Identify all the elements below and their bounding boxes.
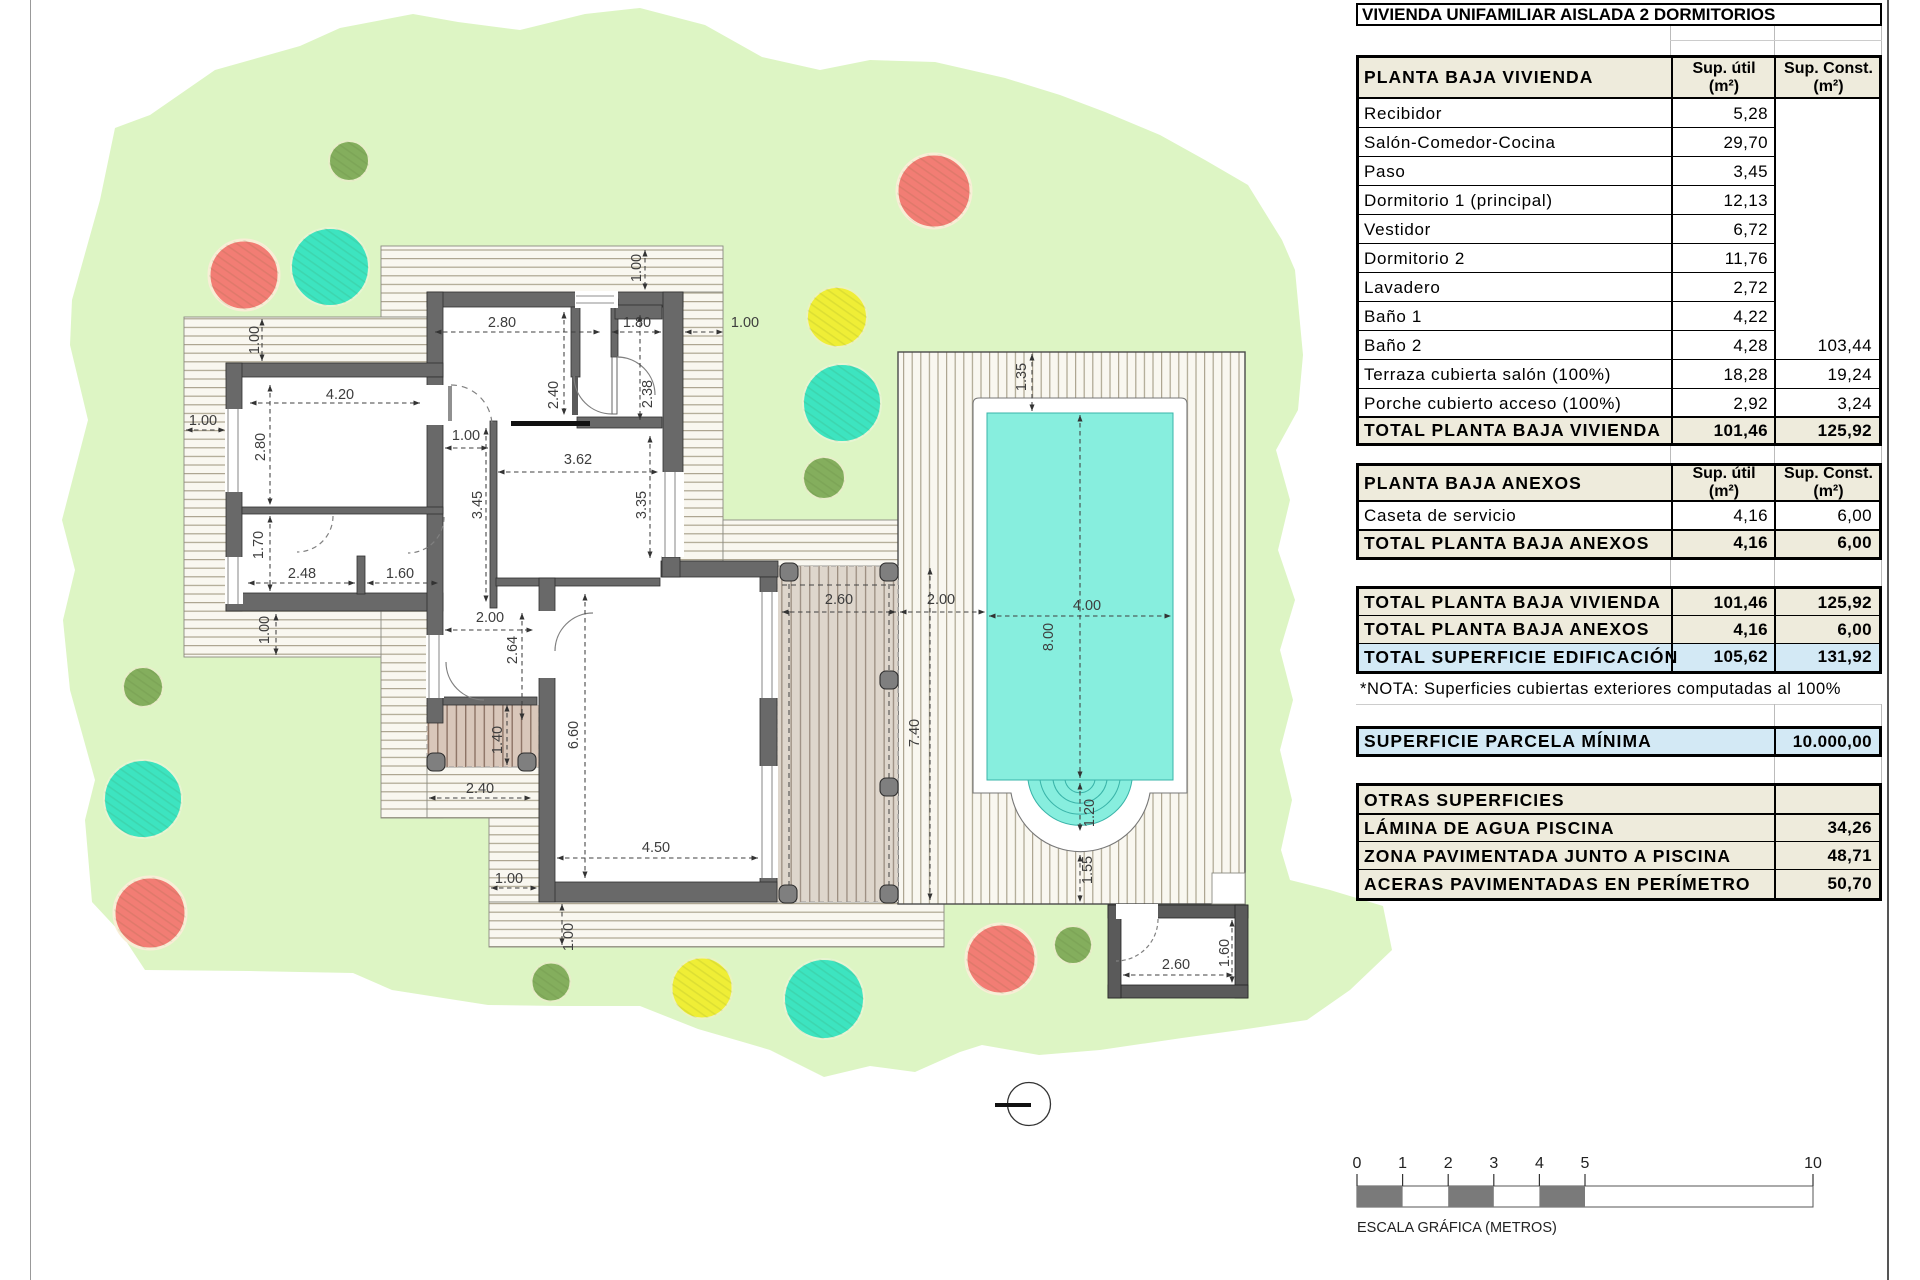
svg-text:8.00: 8.00 [1041, 623, 1057, 651]
svg-text:2.00: 2.00 [476, 610, 504, 626]
svg-text:1.00: 1.00 [247, 326, 263, 354]
svg-text:1.70: 1.70 [251, 531, 267, 559]
svg-text:7.40: 7.40 [907, 719, 923, 747]
svg-text:1.40: 1.40 [490, 726, 506, 754]
svg-text:1.00: 1.00 [452, 428, 480, 444]
svg-text:2: 2 [1444, 1155, 1453, 1172]
svg-text:1.20: 1.20 [1082, 799, 1098, 827]
svg-text:1.00: 1.00 [629, 254, 645, 282]
svg-text:1.55: 1.55 [1080, 856, 1096, 884]
svg-text:1.00: 1.00 [495, 871, 523, 887]
svg-text:4.20: 4.20 [326, 387, 354, 403]
svg-text:2.60: 2.60 [1162, 957, 1190, 973]
svg-text:1.60: 1.60 [386, 566, 414, 582]
svg-text:2.60: 2.60 [825, 592, 853, 608]
svg-text:4.00: 4.00 [1073, 598, 1101, 614]
svg-text:3.45: 3.45 [470, 491, 486, 519]
svg-text:3.62: 3.62 [564, 452, 592, 468]
svg-text:2.00: 2.00 [927, 592, 955, 608]
svg-text:6.60: 6.60 [566, 721, 582, 749]
svg-text:4.50: 4.50 [642, 840, 670, 856]
svg-text:1.00: 1.00 [731, 315, 759, 331]
svg-text:1.00: 1.00 [257, 616, 273, 644]
svg-text:0: 0 [1353, 1155, 1362, 1172]
svg-text:1.00: 1.00 [561, 923, 577, 951]
svg-text:2.80: 2.80 [253, 433, 269, 461]
svg-text:2.40: 2.40 [546, 381, 562, 409]
svg-text:3: 3 [1489, 1155, 1498, 1172]
svg-text:2.40: 2.40 [466, 781, 494, 797]
svg-text:3.35: 3.35 [634, 491, 650, 519]
svg-text:ESCALA GRÁFICA (METROS): ESCALA GRÁFICA (METROS) [1357, 1219, 1557, 1236]
svg-text:5: 5 [1581, 1155, 1590, 1172]
svg-text:4: 4 [1535, 1155, 1544, 1172]
svg-text:1.35: 1.35 [1014, 363, 1030, 391]
svg-text:1.80: 1.80 [623, 315, 651, 331]
svg-text:2.80: 2.80 [488, 315, 516, 331]
svg-text:1.60: 1.60 [1217, 939, 1233, 967]
svg-text:1: 1 [1398, 1155, 1407, 1172]
svg-text:1.00: 1.00 [189, 413, 217, 429]
svg-text:2.64: 2.64 [505, 636, 521, 664]
svg-text:2.38: 2.38 [640, 380, 656, 408]
svg-text:10: 10 [1804, 1155, 1822, 1172]
svg-text:2.48: 2.48 [288, 566, 316, 582]
